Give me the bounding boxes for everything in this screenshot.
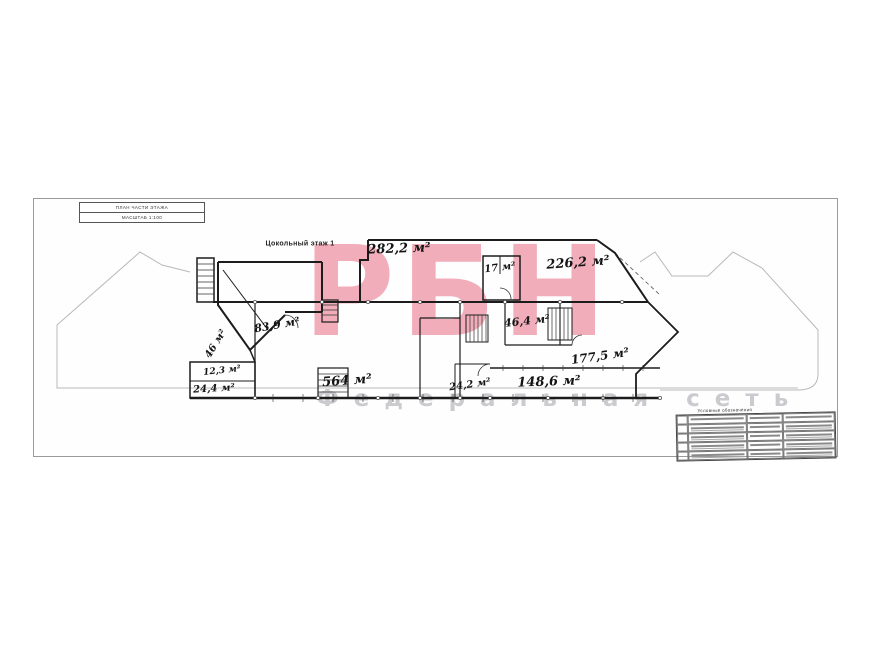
legend-cell (677, 442, 688, 451)
scanned-floorplan-page: ПЛАН ЧАСТИ ЭТАЖА МАСШТАБ 1:100 РБН Федер… (0, 0, 870, 652)
legend-cell (677, 415, 688, 424)
legend-cell (783, 448, 835, 458)
legend-cell (677, 424, 688, 433)
legend-table (676, 411, 837, 461)
floor-caption: Цокольный этаж 1 (266, 241, 335, 248)
area-label-24-4: 24,4 м² (193, 382, 235, 395)
legend-block: Условные обозначения (675, 405, 836, 461)
area-label-282-2: 282,2 м² (367, 240, 431, 257)
area-label-148-6: 148,6 м² (517, 373, 581, 390)
legend-cell (677, 451, 688, 460)
legend-cell (747, 449, 784, 459)
legend-cell (677, 433, 688, 442)
legend-cell (688, 450, 747, 460)
